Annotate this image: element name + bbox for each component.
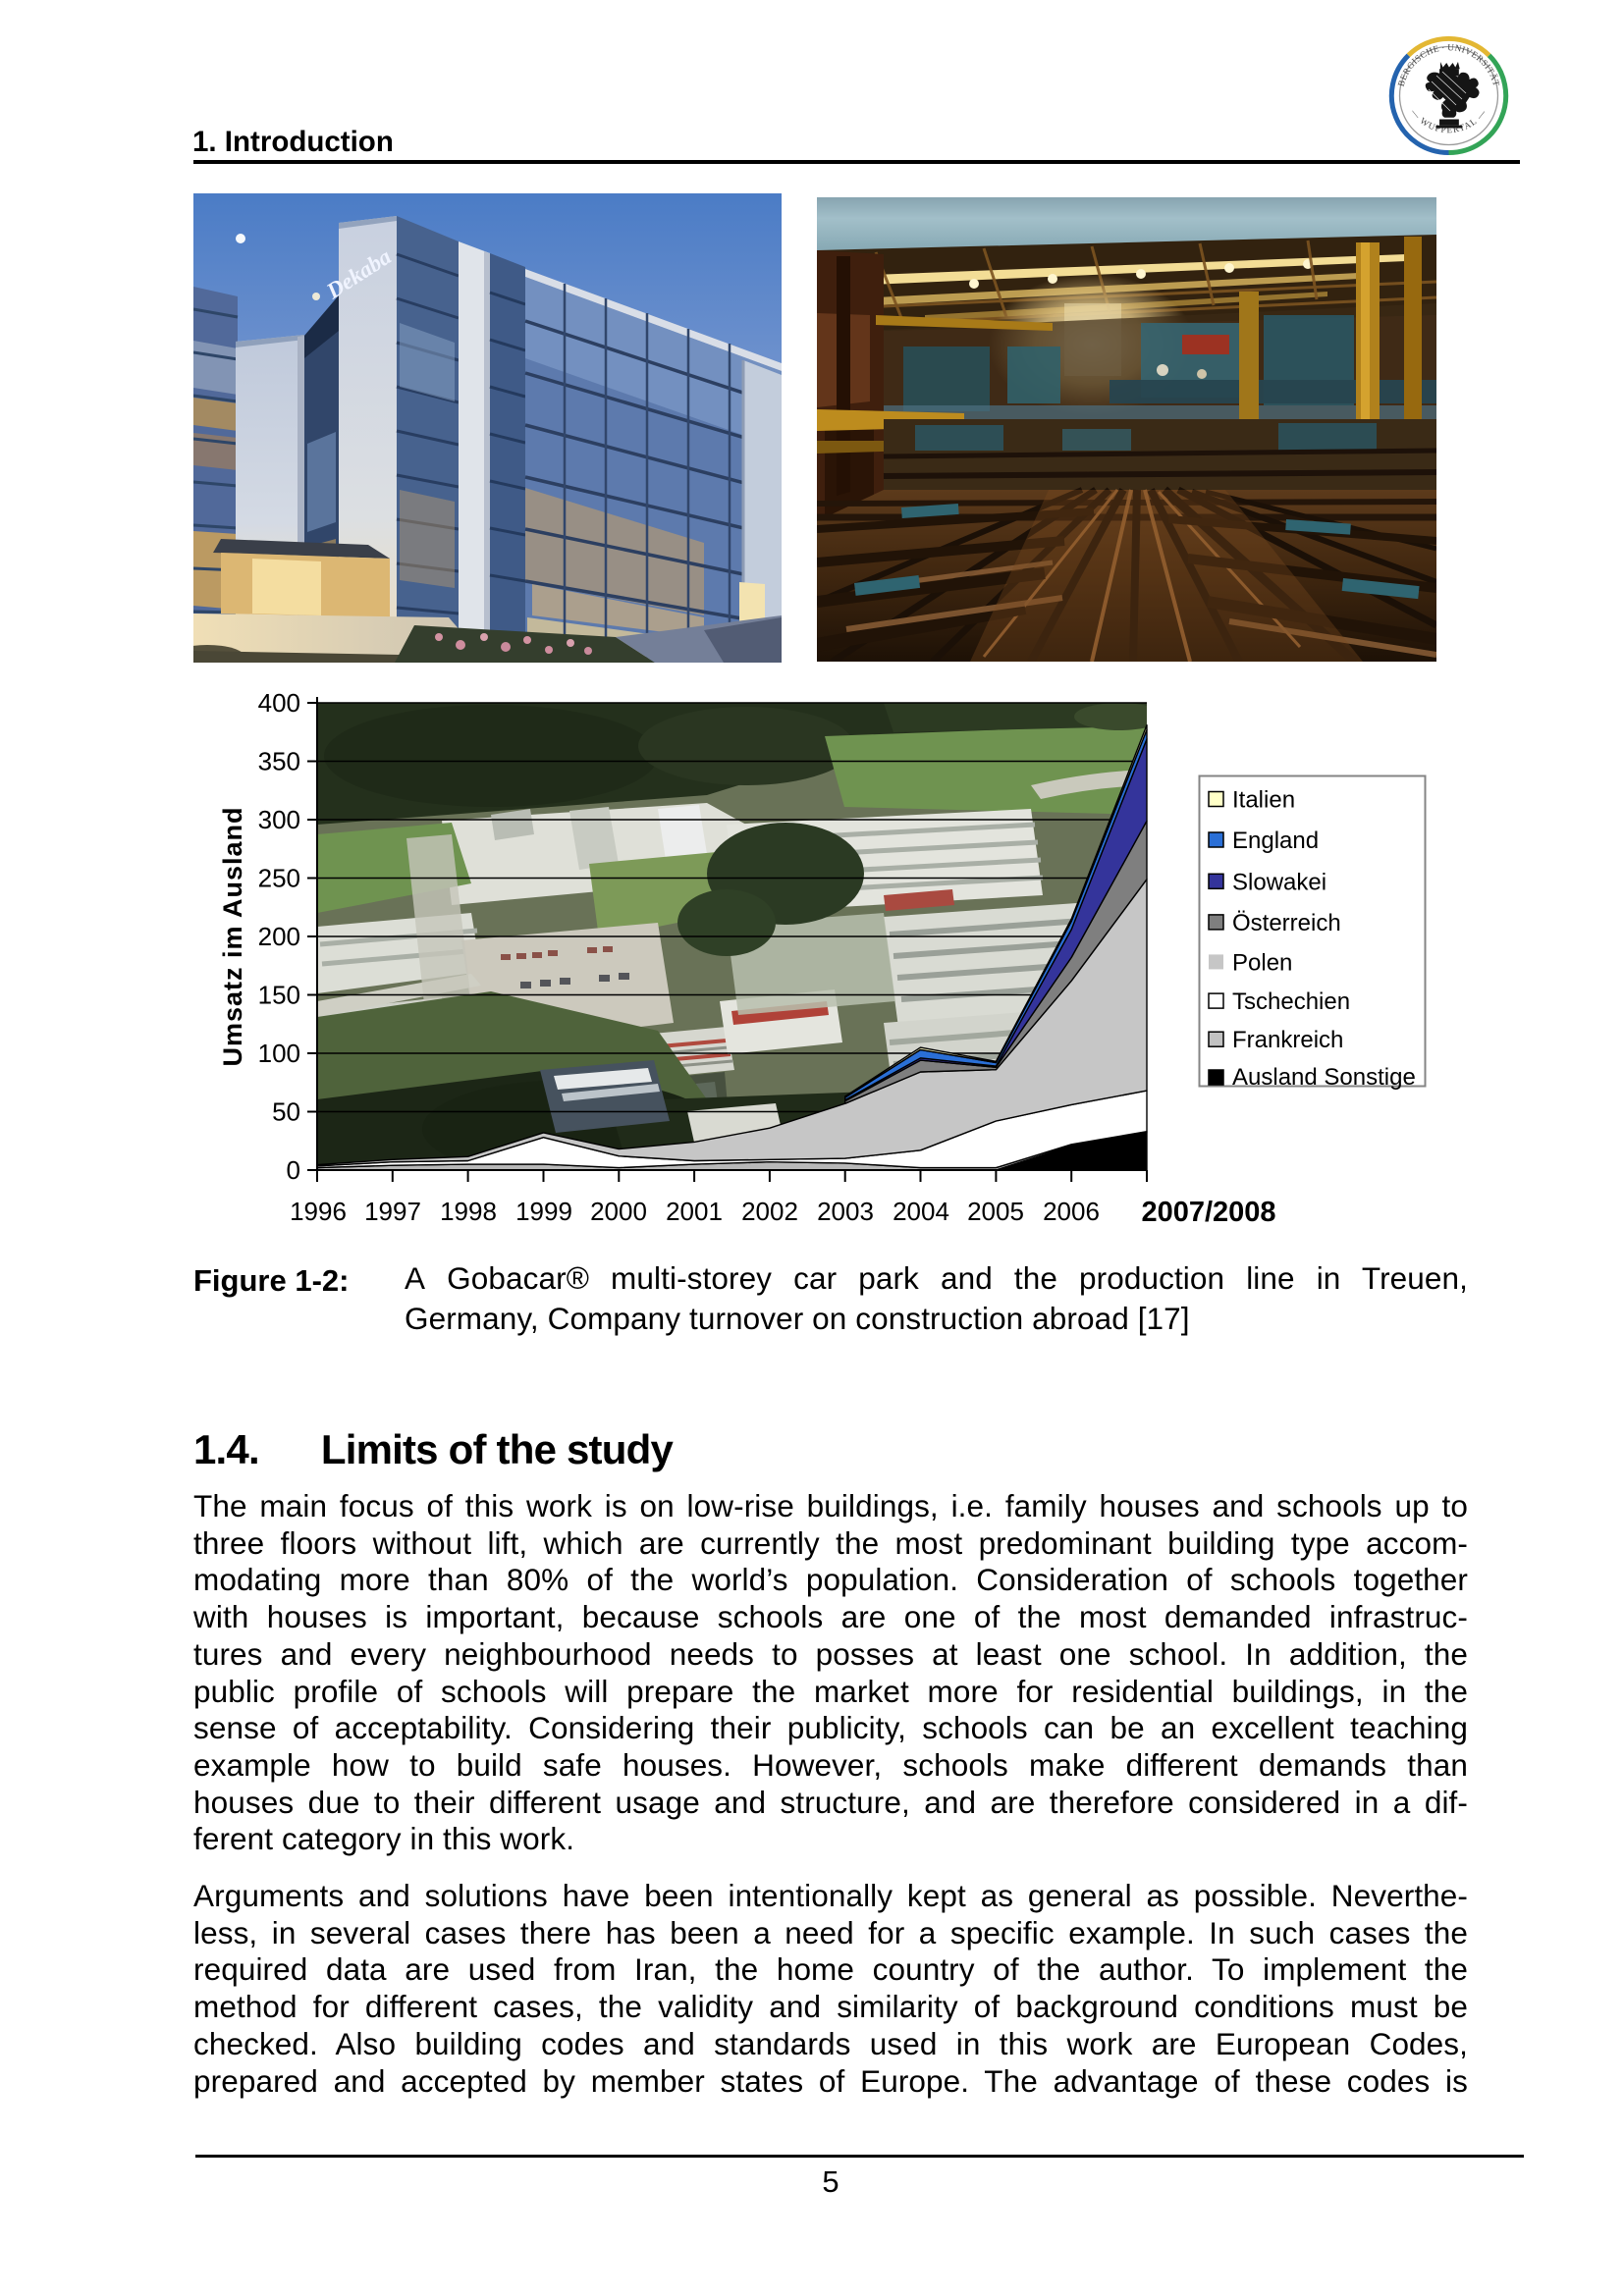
svg-text:Italien: Italien [1232, 787, 1295, 814]
svg-text:250: 250 [258, 864, 300, 893]
svg-text:Umsatz im Ausland: Umsatz im Ausland [218, 806, 247, 1066]
svg-text:Frankreich: Frankreich [1232, 1027, 1343, 1053]
svg-text:2007/2008: 2007/2008 [1141, 1197, 1275, 1228]
svg-text:England: England [1232, 828, 1319, 854]
svg-text:150: 150 [258, 981, 300, 1010]
svg-text:1996: 1996 [290, 1197, 347, 1226]
svg-text:Polen: Polen [1232, 949, 1292, 976]
svg-text:100: 100 [258, 1039, 300, 1068]
svg-text:200: 200 [258, 922, 300, 951]
svg-text:2006: 2006 [1043, 1197, 1100, 1226]
svg-text:300: 300 [258, 805, 300, 834]
svg-text:2004: 2004 [893, 1197, 949, 1226]
svg-text:2005: 2005 [967, 1197, 1024, 1226]
svg-text:2001: 2001 [666, 1197, 723, 1226]
svg-text:400: 400 [258, 688, 300, 718]
svg-text:2002: 2002 [741, 1197, 798, 1226]
svg-text:1997: 1997 [364, 1197, 421, 1226]
svg-text:Österreich: Österreich [1232, 910, 1341, 936]
svg-text:0: 0 [287, 1155, 300, 1185]
svg-text:Ausland Sonstige: Ausland Sonstige [1232, 1064, 1416, 1091]
svg-text:Slowakei: Slowakei [1232, 869, 1326, 895]
svg-text:2000: 2000 [590, 1197, 647, 1226]
svg-text:1998: 1998 [440, 1197, 497, 1226]
svg-text:50: 50 [272, 1097, 300, 1127]
svg-text:350: 350 [258, 747, 300, 776]
svg-text:Tschechien: Tschechien [1232, 988, 1350, 1015]
svg-text:2003: 2003 [817, 1197, 874, 1226]
svg-text:1999: 1999 [515, 1197, 572, 1226]
